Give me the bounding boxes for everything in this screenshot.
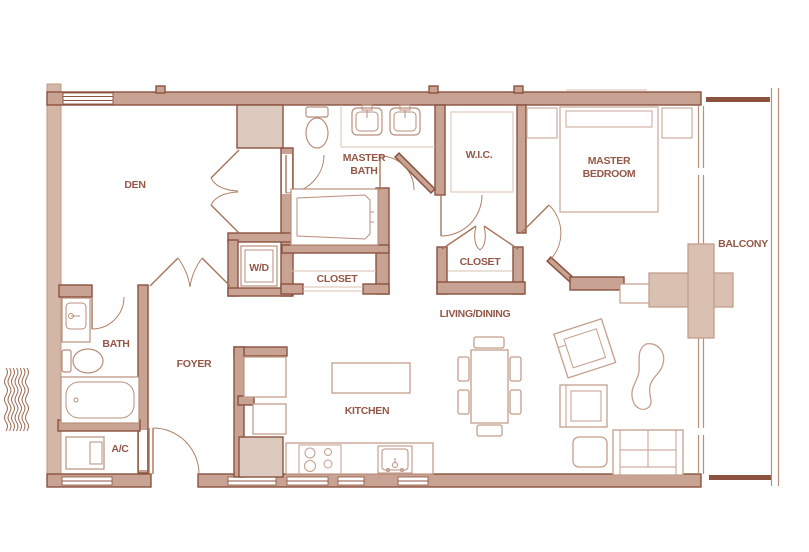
nightstand — [662, 108, 692, 138]
kidney-rug — [632, 344, 664, 410]
pantry — [253, 404, 286, 434]
room-label-balcony: BALCONY — [718, 238, 768, 250]
den-window — [63, 93, 113, 104]
wic-door — [441, 195, 482, 236]
room-label-master-bath-1: MASTER — [343, 152, 386, 164]
floor-plan: DEN MASTER BATH W.I.C. MASTER BEDROOM BA… — [0, 0, 809, 552]
end-table — [573, 437, 607, 467]
foyer-den-doors — [150, 258, 230, 287]
kitchen-island — [332, 363, 410, 393]
room-label-master-bath-2: BATH — [350, 165, 377, 177]
hatch-marks — [5, 368, 29, 431]
closet-bottom-cap — [281, 284, 303, 294]
bedroom-south-wall — [570, 277, 624, 290]
den-double-doors — [211, 150, 239, 233]
cross-column — [620, 244, 733, 338]
ac-unit — [66, 437, 104, 469]
balcony-top-wall — [706, 97, 770, 102]
room-label-closet-hall: CLOSET — [317, 273, 359, 285]
living-north-wall — [437, 282, 525, 294]
armchair — [560, 385, 607, 427]
shaded-column — [237, 105, 283, 148]
kitchen-fixtures — [239, 357, 433, 477]
room-label-master-bedroom-2: BEDROOM — [583, 168, 636, 180]
entry-door — [149, 428, 199, 474]
ac-door-opening — [139, 430, 147, 470]
room-label-foyer: FOYER — [177, 358, 212, 370]
closet-top-wall — [282, 245, 389, 253]
floor-plan-drawing: DEN MASTER BATH W.I.C. MASTER BEDROOM BA… — [0, 0, 809, 552]
vanity-sink — [390, 105, 420, 135]
bath-toilet — [62, 349, 103, 373]
bathtub — [291, 189, 378, 245]
dining-set — [458, 337, 521, 436]
closet-bottom-cap — [363, 284, 389, 294]
bedroom-door — [521, 205, 561, 260]
armchair-tilted — [554, 319, 616, 378]
living-furniture — [554, 319, 683, 475]
bath-sink — [62, 298, 90, 342]
room-label-closet-bedroom: CLOSET — [460, 256, 502, 268]
wall-stub — [156, 86, 165, 93]
bath-door — [92, 297, 124, 329]
vanity-sink — [352, 105, 382, 135]
bath-fixtures — [61, 298, 139, 423]
room-label-wic: W.I.C. — [466, 149, 493, 161]
toilet — [306, 107, 328, 148]
wall-stub — [429, 86, 438, 93]
fridge — [244, 357, 286, 397]
nightstand — [527, 108, 557, 138]
sofa — [613, 430, 683, 475]
kitchen-column — [239, 437, 283, 477]
interior-walls — [58, 105, 624, 477]
dining-chair — [458, 357, 469, 381]
bath-tub — [61, 377, 139, 423]
room-label-ac: A/C — [111, 443, 129, 455]
closet2-doors — [442, 226, 518, 250]
bath2-top-wall — [59, 285, 92, 297]
room-label-bath: BATH — [102, 338, 129, 350]
balcony-bottom-wall — [709, 475, 771, 480]
room-label-den: DEN — [124, 179, 145, 191]
bedroom-left-wall — [517, 105, 526, 233]
dining-chair — [458, 390, 469, 414]
dining-chair — [510, 357, 521, 381]
dining-table — [471, 350, 508, 423]
diagonal-wall — [399, 157, 431, 189]
dining-chair — [510, 390, 521, 414]
room-label-kitchen: KITCHEN — [345, 405, 390, 417]
wic-left-wall — [435, 105, 445, 195]
balcony-railing — [772, 88, 779, 486]
bath-door-opening — [282, 154, 292, 194]
room-label-wd: W/D — [249, 262, 269, 274]
room-label-living-dining: LIVING/DINING — [440, 308, 511, 320]
room-label-master-bedroom-1: MASTER — [588, 155, 631, 167]
top-exterior-wall — [47, 92, 701, 105]
dining-chair — [474, 337, 504, 348]
kitchen-counter — [286, 443, 433, 474]
dining-chair — [477, 425, 502, 436]
wall-stub — [514, 86, 523, 93]
